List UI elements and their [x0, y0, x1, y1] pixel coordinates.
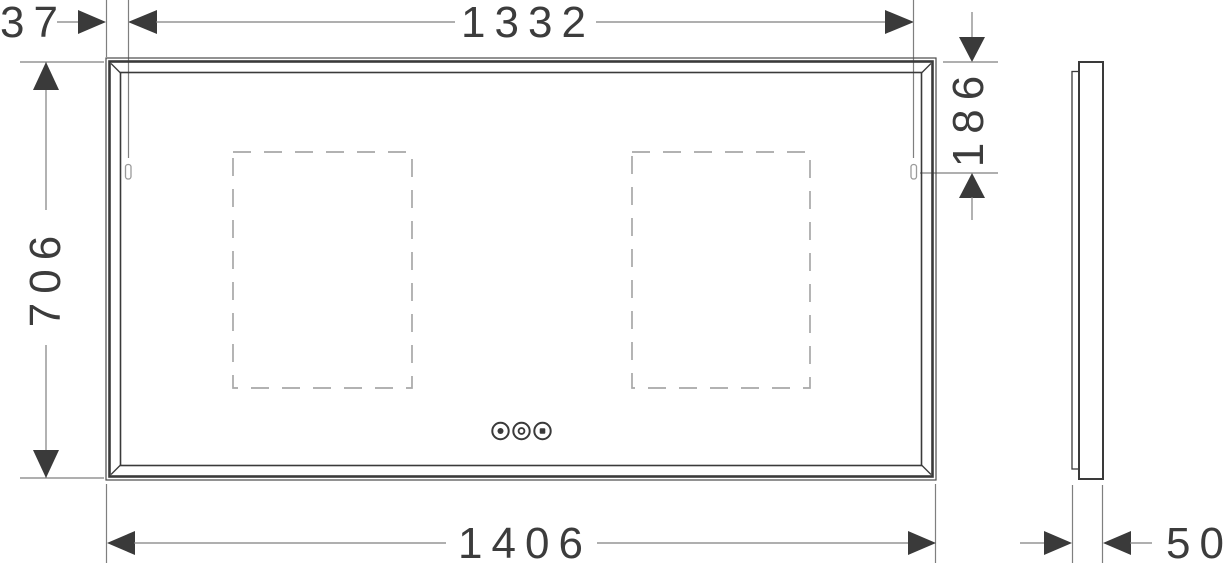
control-button-2 [513, 423, 529, 439]
mirror-frame [106, 58, 936, 480]
dimension-label-706: 706 [21, 227, 70, 327]
dimension-label-50: 50 [1166, 519, 1223, 568]
light-zone-right [632, 152, 810, 388]
miter-bottom-right [921, 465, 931, 475]
control-buttons [492, 423, 550, 439]
dimension-overall-width: 1406 [107, 484, 937, 568]
side-view [1072, 62, 1103, 479]
dimension-label-1332: 1332 [461, 0, 595, 47]
mounting-clip-right [911, 165, 917, 180]
button-donut-icon [519, 428, 525, 434]
light-zone-left [233, 152, 412, 388]
control-button-1 [492, 423, 508, 439]
arrowhead-left [1103, 531, 1131, 555]
arrowhead-right [1044, 531, 1072, 555]
arrowhead-left [107, 531, 135, 555]
dimension-overall-height: 706 [20, 62, 104, 478]
dimension-hanger-spacing: 1332 [128, 0, 914, 158]
arrowhead-up [959, 173, 985, 198]
arrowhead-up [33, 62, 59, 90]
miter-top-left [111, 64, 121, 74]
button-ring [513, 423, 529, 439]
miter-top-right [921, 64, 931, 74]
side-front-frame [1079, 62, 1103, 479]
dimension-label-186: 186 [944, 67, 993, 167]
dimension-hanger-offset: 37 [0, 0, 107, 57]
mounting-clip-left [126, 165, 132, 180]
dimension-depth: 50 [1020, 485, 1223, 568]
arrowhead-down [33, 450, 59, 478]
button-square-icon [540, 428, 546, 434]
front-view [106, 58, 936, 480]
arrowhead-right [885, 10, 914, 34]
button-dot-icon [498, 428, 504, 434]
control-button-3 [534, 423, 550, 439]
side-back-panel [1072, 72, 1079, 470]
frame-outer-contour [106, 58, 936, 480]
arrowhead-right [78, 10, 106, 34]
frame-inner-edge [121, 73, 922, 466]
arrowhead-right [908, 531, 936, 555]
dimension-drawing: 37 1332 186 706 140 [0, 0, 1223, 569]
arrowhead-left [128, 10, 157, 34]
miter-bottom-left [111, 465, 121, 475]
dimension-label-37: 37 [0, 0, 67, 47]
drawing-canvas: 37 1332 186 706 140 [0, 0, 1223, 569]
arrowhead-down [959, 37, 985, 62]
dimension-label-1406: 1406 [458, 519, 592, 568]
